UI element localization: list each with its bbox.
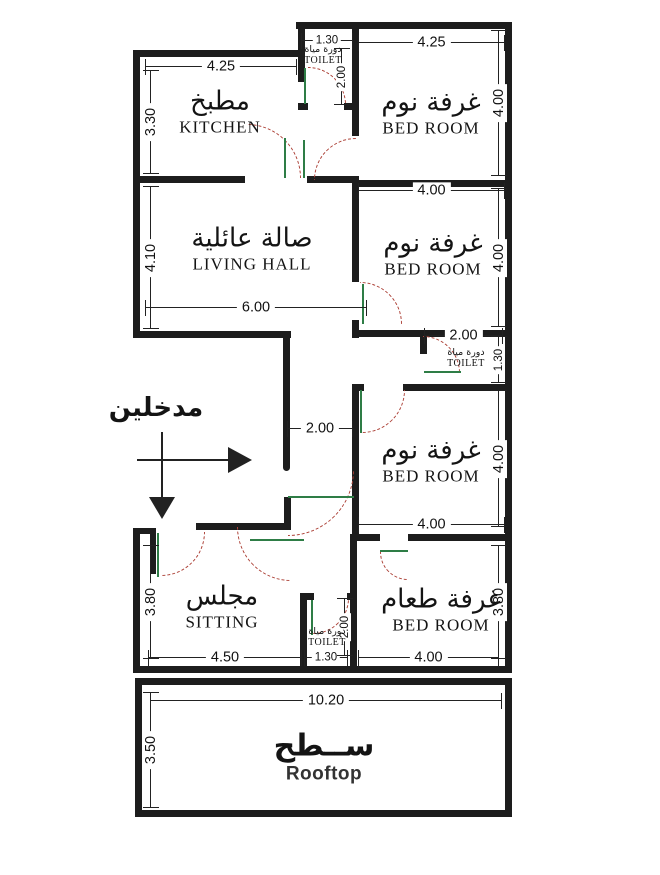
living-name-english: LIVING HALL: [191, 254, 312, 274]
dim-bedroom3-height: 4.00: [498, 390, 499, 527]
wall-dining-left: [350, 534, 357, 673]
dim-corridor-width: 2.00: [287, 428, 353, 429]
room-label-living: صالة عائلية LIVING HALL: [191, 224, 312, 275]
toilet3-name-english: TOILET: [308, 637, 346, 648]
dining-name-english: BED ROOM: [381, 615, 501, 635]
wall-kitchen-top: [133, 50, 303, 57]
door-leaf-bedroom3: [360, 390, 362, 433]
bedroom2-name-arabic: غرفة نوم: [383, 229, 482, 260]
bedroom3-name-arabic: غرفة نوم: [381, 436, 480, 467]
dim-bedroom2-height: 4.00: [498, 188, 499, 327]
room-label-dining: غرفة طعام BED ROOM: [381, 585, 501, 636]
toilet1-name-english: TOILET: [304, 55, 342, 66]
dim-value: 4.00: [412, 516, 450, 532]
entrance-label: مدخلين: [109, 393, 203, 423]
dim-sitting-height: 3.80: [150, 545, 151, 659]
wall-top-outer: [296, 22, 512, 29]
dim-value: 4.00: [491, 439, 507, 477]
dim-bedroom1-height: 4.00: [498, 30, 499, 176]
room-label-kitchen: مطبخ KITCHEN: [179, 87, 261, 138]
door-leaf-kitchen-2: [303, 140, 305, 178]
dim-value: 4.00: [412, 182, 450, 198]
room-label-bedroom1: غرفة نوم BED ROOM: [381, 88, 480, 139]
toilet2-name-english: TOILET: [447, 358, 485, 369]
rooftop-name-english: Rooftop: [274, 764, 375, 786]
door-leaf-toilet2: [424, 371, 461, 373]
dim-value: 4.00: [409, 649, 447, 665]
dim-value: 4.00: [491, 84, 507, 122]
dim-value: 4.25: [412, 34, 450, 50]
dim-rooftop-width: 10.20: [150, 700, 502, 701]
dim-value: 6.00: [237, 299, 275, 315]
dim-living-width: 6.00: [145, 307, 367, 308]
bedroom3-name-english: BED ROOM: [381, 466, 480, 486]
door-leaf-entrance: [288, 496, 354, 498]
dim-kitchen-height: 3.30: [150, 70, 151, 174]
dim-bedroom2-width: 4.00: [358, 190, 505, 191]
room-label-sitting: مجلس SITTING: [185, 582, 258, 633]
room-label-bedroom2: غرفة نوم BED ROOM: [383, 229, 482, 280]
floor-plan: 4.25 1.30 4.25 3.30 2.00 4.00 4.10 4.00 …: [0, 0, 660, 875]
sitting-name-english: SITTING: [185, 612, 258, 632]
kitchen-name-arabic: مطبخ: [179, 87, 261, 118]
wall-bottom-outer: [133, 666, 512, 673]
dim-value: 4.25: [202, 58, 240, 74]
dim-value: 2.00: [336, 62, 348, 90]
wall-left-upper: [133, 50, 140, 338]
dim-value: 1.30: [493, 345, 505, 373]
dim-value: 3.50: [143, 731, 159, 769]
door-leaf-hall-sitting: [250, 539, 304, 541]
room-label-toilet1: دورة مياة TOILET: [304, 44, 342, 66]
dim-dining-width: 4.00: [358, 657, 499, 658]
toilet3-name-arabic: دورة مياة: [308, 626, 346, 637]
living-name-arabic: صالة عائلية: [191, 224, 312, 255]
door-leaf-bedroom2: [362, 284, 364, 324]
dim-value: 4.50: [206, 649, 244, 665]
dim-value: 2.00: [301, 420, 339, 436]
room-label-bedroom3: غرفة نوم BED ROOM: [381, 436, 480, 487]
dim-bedroom1-width: 4.25: [358, 42, 505, 43]
toilet1-name-arabic: دورة مياة: [304, 44, 342, 55]
bedroom1-name-english: BED ROOM: [381, 118, 480, 138]
room-label-toilet3: دورة مياة TOILET: [308, 626, 346, 648]
bedroom1-name-arabic: غرفة نوم: [381, 88, 480, 119]
dim-toilet2-height: 1.30: [498, 336, 499, 383]
dim-value: 3.30: [143, 103, 159, 141]
dim-value: 3.80: [143, 583, 159, 621]
door-leaf-toilet1: [304, 68, 306, 104]
dim-value: 4.10: [143, 238, 159, 276]
door-leaf-sitting-entry: [157, 533, 159, 577]
wall-living-bottom: [133, 331, 291, 338]
room-label-rooftop: ســطح Rooftop: [274, 728, 375, 785]
dim-value: 10.20: [303, 692, 349, 708]
dining-name-arabic: غرفة طعام: [381, 585, 501, 616]
dim-value: 4.00: [491, 238, 507, 276]
bedroom2-name-english: BED ROOM: [383, 259, 482, 279]
room-label-toilet2: دورة مياة TOILET: [447, 347, 485, 369]
dim-value: 1.30: [312, 652, 340, 664]
dim-bedroom3-width: 4.00: [358, 524, 505, 525]
dim-toilet1-width: 1.30: [301, 40, 353, 41]
door-leaf-kitchen-1: [284, 138, 286, 178]
dim-sitting-width: 4.50: [148, 657, 302, 658]
dim-value: 2.00: [444, 327, 482, 343]
sitting-name-arabic: مجلس: [185, 582, 258, 613]
rooftop-name-arabic: ســطح: [274, 728, 375, 763]
toilet2-name-arabic: دورة مياة: [447, 347, 485, 358]
dim-kitchen-width: 4.25: [145, 66, 297, 67]
door-leaf-dining: [380, 550, 408, 552]
kitchen-name-english: KITCHEN: [179, 117, 261, 137]
dim-rooftop-height: 3.50: [150, 692, 151, 808]
dim-toilet3-width: 1.30: [304, 657, 348, 658]
